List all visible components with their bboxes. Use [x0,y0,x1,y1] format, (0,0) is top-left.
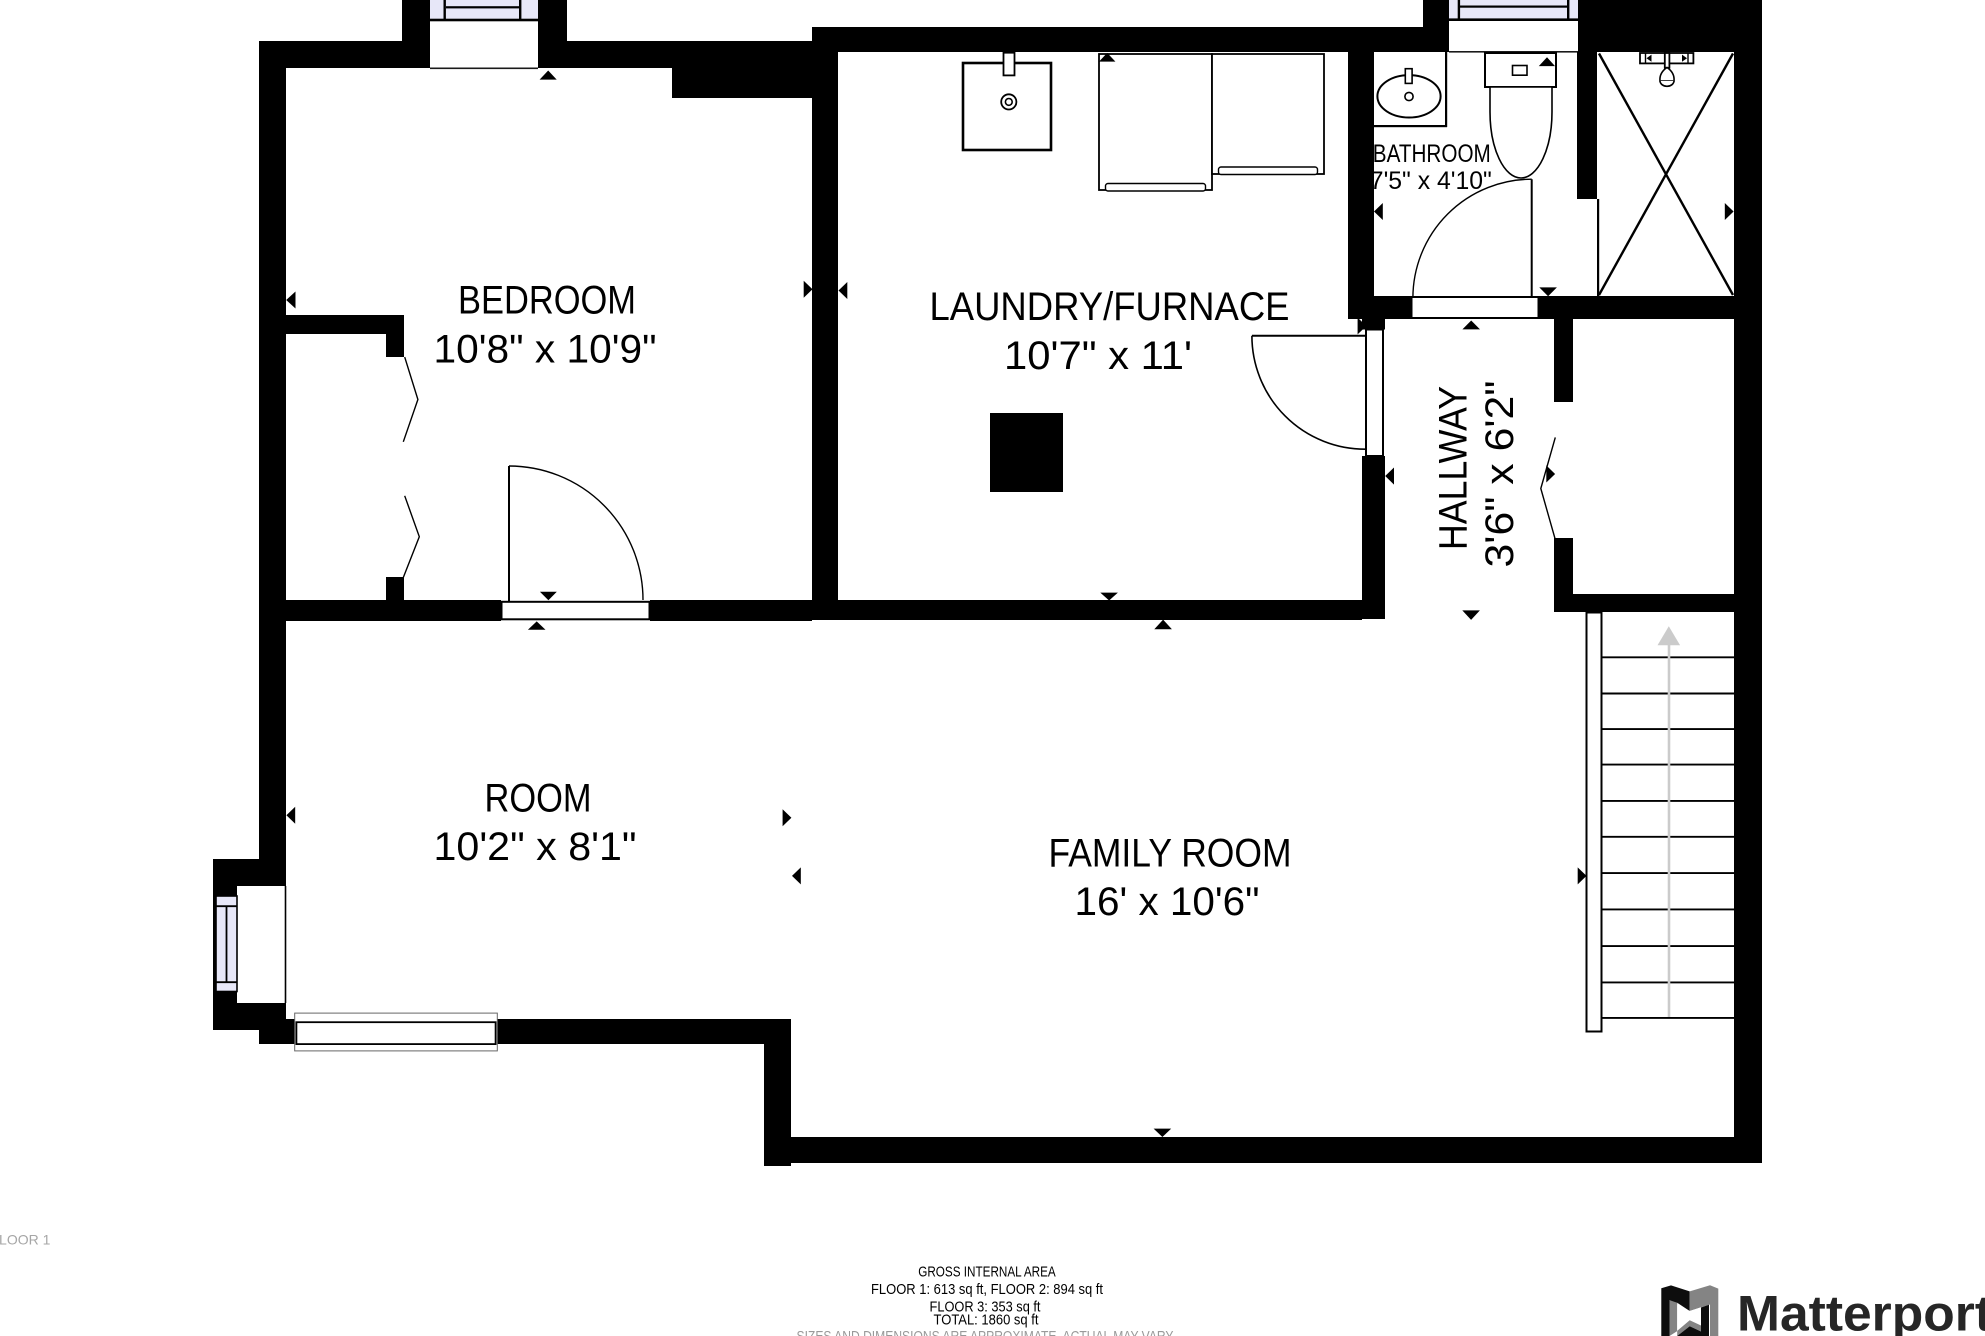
svg-text:HALLWAY: HALLWAY [1432,386,1476,550]
svg-text:Matterport: Matterport [1737,1286,1985,1336]
svg-text:16' x 10'6": 16' x 10'6" [1075,880,1260,924]
svg-text:LAUNDRY/FURNACE: LAUNDRY/FURNACE [930,285,1290,329]
svg-text:FLOOR 1: 613 sq ft, FLOOR 2: 8: FLOOR 1: 613 sq ft, FLOOR 2: 894 sq ft [871,1282,1103,1298]
svg-text:FLOOR 1: FLOOR 1 [0,1232,51,1248]
svg-text:TOTAL: 1860 sq ft: TOTAL: 1860 sq ft [934,1312,1039,1328]
svg-text:10'8" x 10'9": 10'8" x 10'9" [434,328,657,372]
svg-text:SIZES AND DIMENSIONS ARE APPRO: SIZES AND DIMENSIONS ARE APPROXIMATE, AC… [797,1329,1174,1336]
svg-text:7'5" x 4'10": 7'5" x 4'10" [1370,167,1492,195]
svg-text:ROOM: ROOM [485,777,592,821]
svg-text:10'2" x 8'1": 10'2" x 8'1" [434,825,637,869]
svg-text:BATHROOM: BATHROOM [1373,140,1491,168]
svg-text:3'6" x 6'2": 3'6" x 6'2" [1478,381,1522,568]
svg-text:FAMILY ROOM: FAMILY ROOM [1049,832,1292,876]
svg-text:GROSS INTERNAL AREA: GROSS INTERNAL AREA [918,1264,1056,1280]
svg-text:BEDROOM: BEDROOM [458,279,636,323]
svg-text:10'7" x 11': 10'7" x 11' [1004,334,1192,378]
